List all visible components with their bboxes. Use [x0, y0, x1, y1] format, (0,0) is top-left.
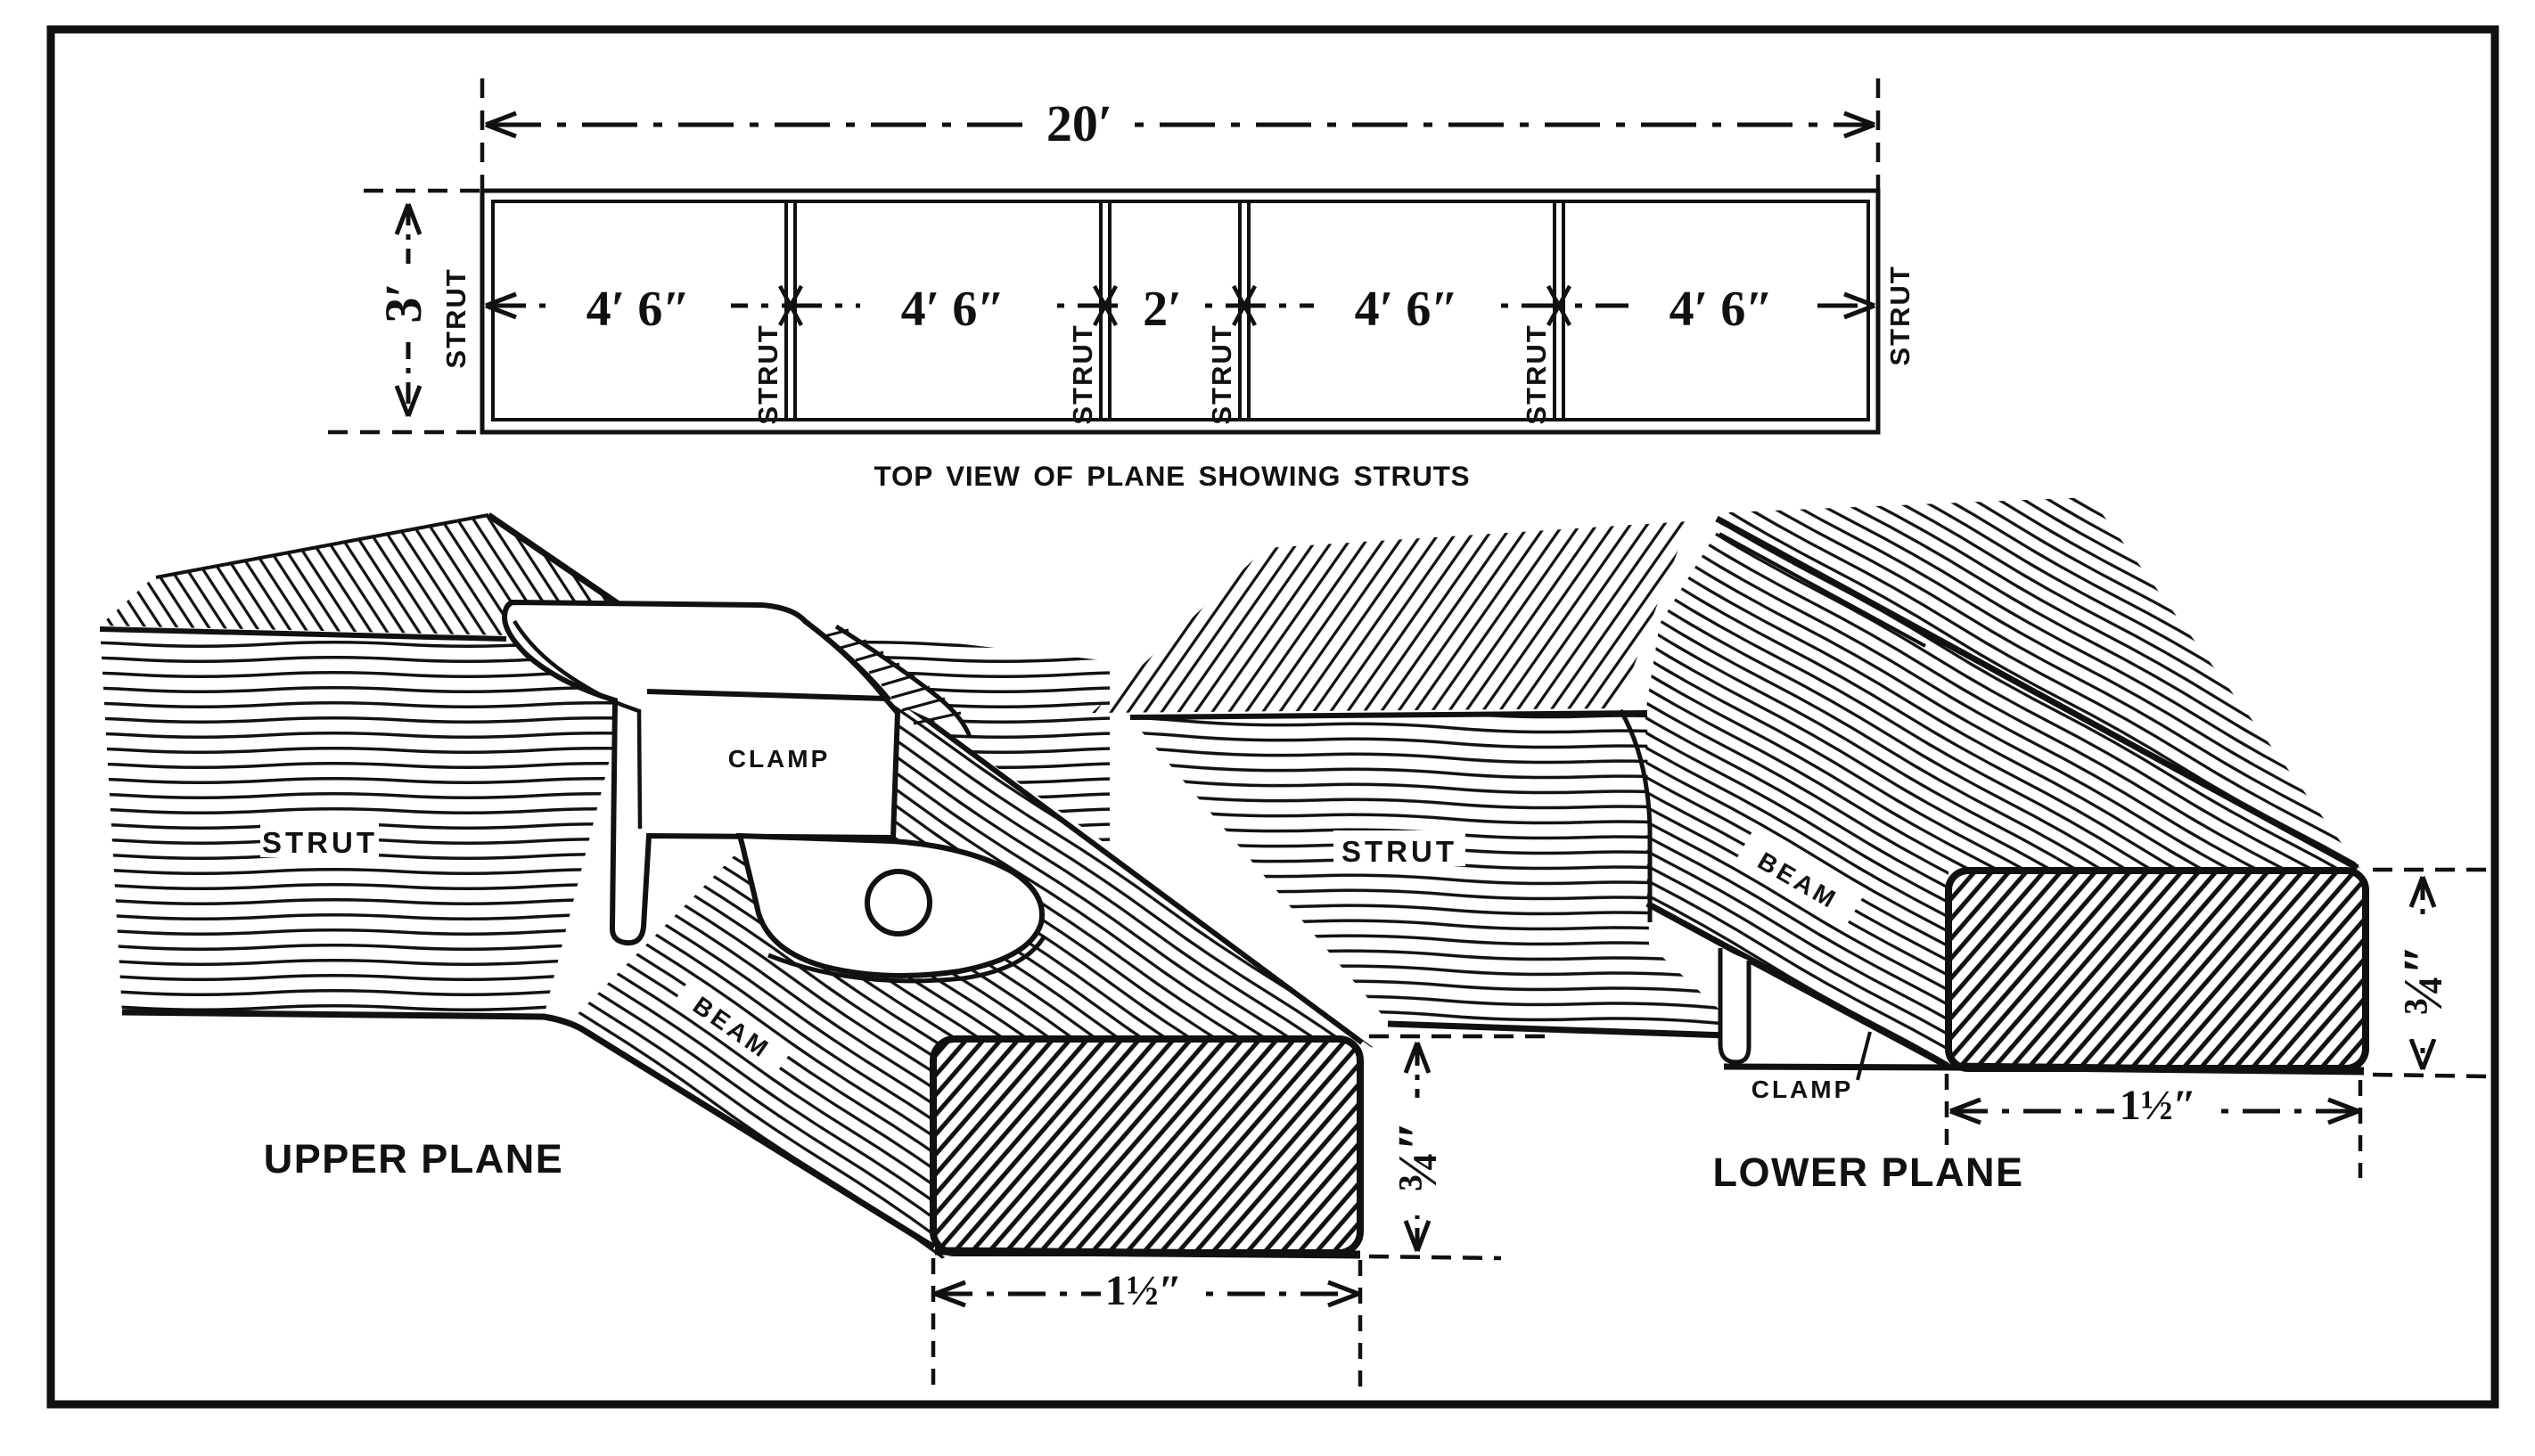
- svg-text:TOP VIEW OF PLANE SHOWING STRU: TOP VIEW OF PLANE SHOWING STRUTS: [874, 460, 1471, 492]
- svg-text:STRUT: STRUT: [1206, 323, 1237, 424]
- svg-text:¾″: ¾″: [2393, 945, 2454, 1017]
- svg-text:UPPER PLANE: UPPER PLANE: [264, 1136, 564, 1182]
- svg-text:4′ 6″: 4′ 6″: [1355, 282, 1459, 337]
- svg-text:LOWER PLANE: LOWER PLANE: [1713, 1149, 2024, 1195]
- svg-text:STRUT: STRUT: [262, 826, 378, 859]
- svg-text:4′ 6″: 4′ 6″: [1669, 282, 1774, 337]
- svg-text:STRUT: STRUT: [440, 267, 472, 368]
- svg-text:20′: 20′: [1046, 94, 1112, 152]
- svg-text:STRUT: STRUT: [752, 323, 783, 424]
- svg-text:STRUT: STRUT: [1521, 323, 1552, 424]
- svg-text:CLAMP: CLAMP: [1752, 1076, 1854, 1103]
- svg-text:STRUT: STRUT: [1884, 265, 1916, 365]
- svg-text:STRUT: STRUT: [1341, 835, 1457, 868]
- svg-text:1½″: 1½″: [1105, 1267, 1183, 1314]
- svg-text:1½″: 1½″: [2120, 1082, 2197, 1129]
- svg-text:2′: 2′: [1143, 282, 1182, 337]
- svg-text:CLAMP: CLAMP: [728, 745, 831, 773]
- svg-text:STRUT: STRUT: [1067, 323, 1098, 424]
- svg-text:3′: 3′: [374, 282, 432, 323]
- svg-text:4′ 6″: 4′ 6″: [587, 282, 691, 337]
- svg-text:¾″: ¾″: [1388, 1121, 1448, 1193]
- svg-text:4′ 6″: 4′ 6″: [901, 282, 1005, 337]
